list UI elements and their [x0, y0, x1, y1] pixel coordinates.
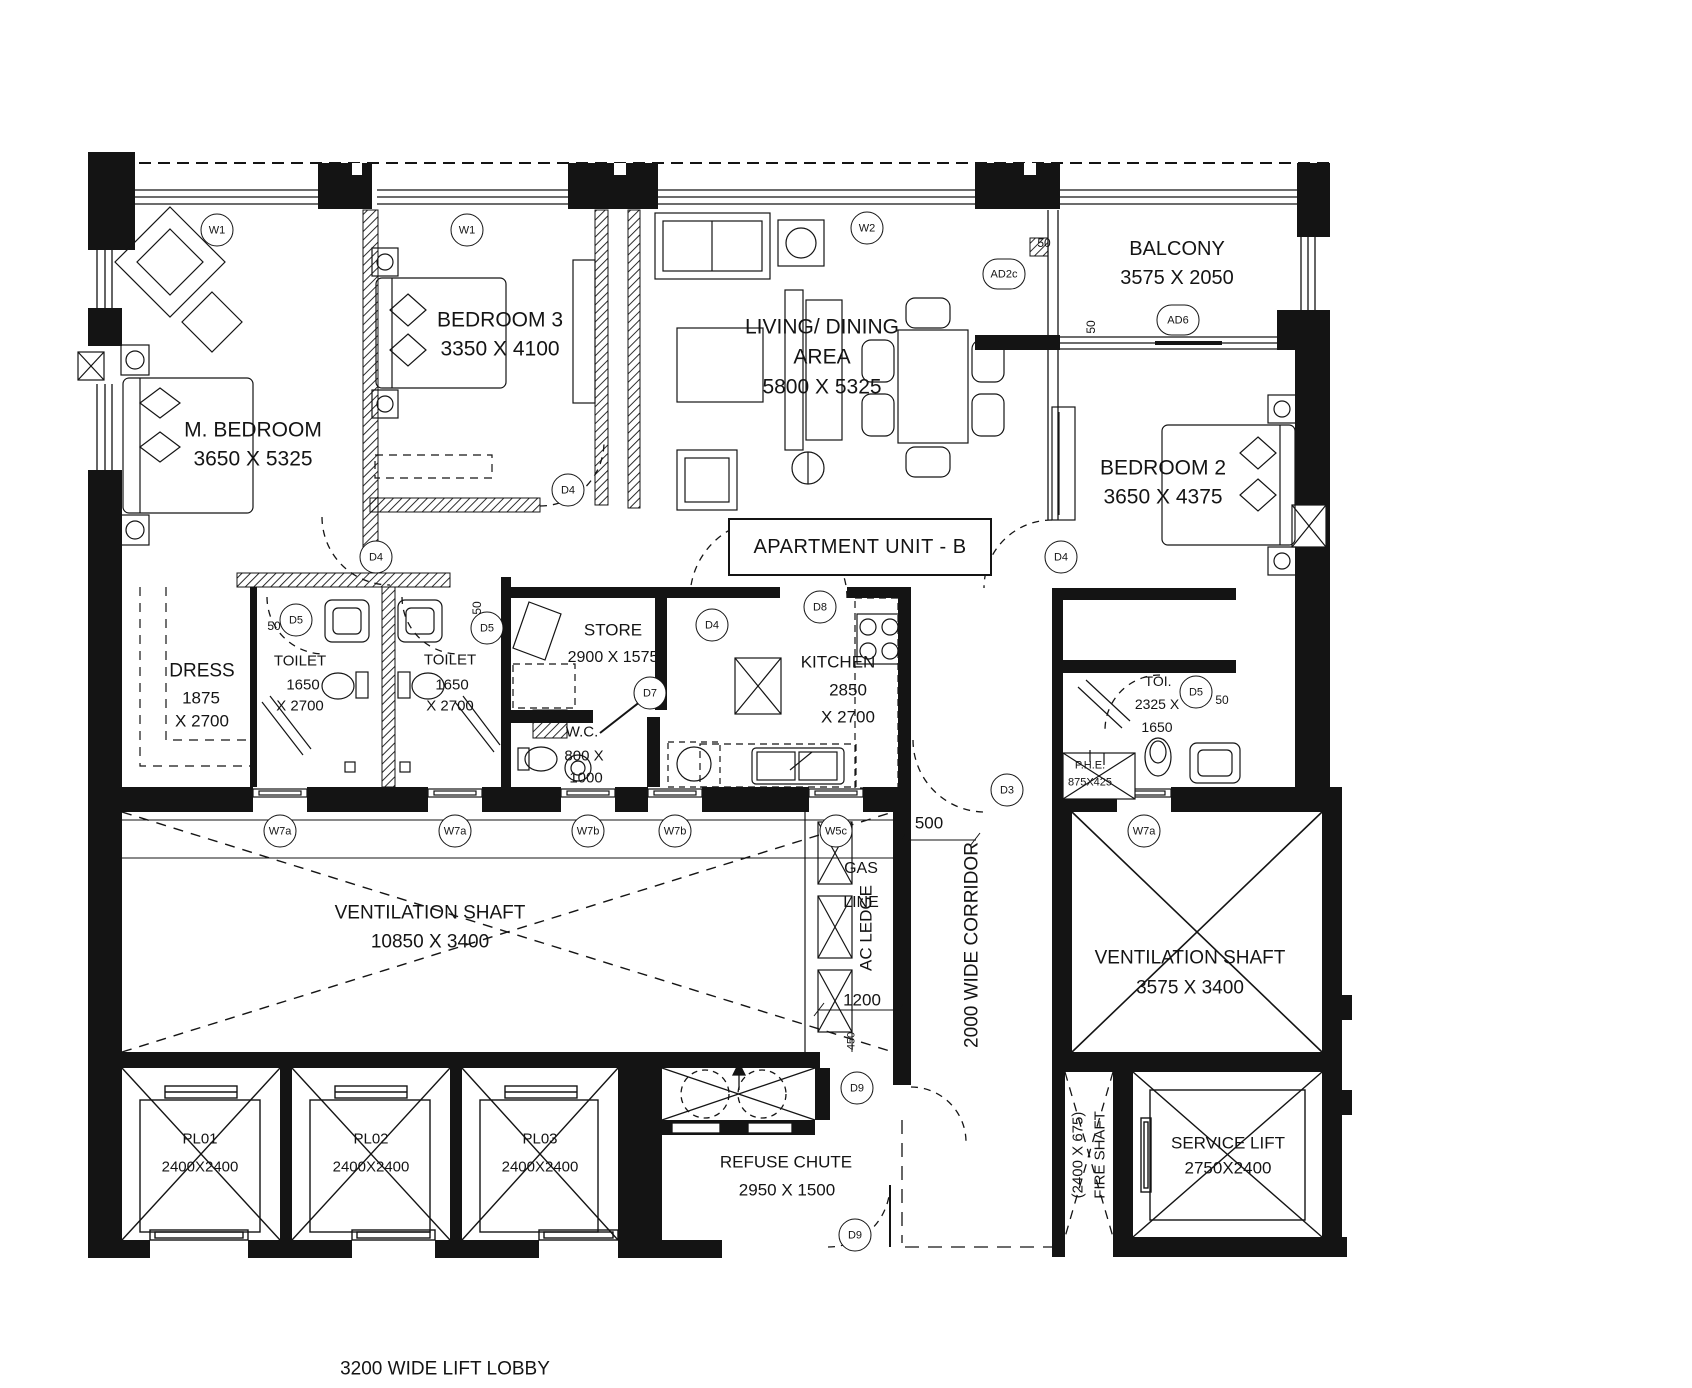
floor-plan-canvas: APARTMENT UNIT - B M. BEDROOM 3650 X 532…: [0, 0, 1692, 1388]
service-lift-cab: [1133, 1072, 1322, 1237]
tag-door-d4-mbed: D4: [360, 541, 393, 574]
dim-50-balcony-bottom: 50: [1085, 320, 1097, 333]
label-refuse: REFUSE CHUTE: [720, 1154, 852, 1171]
label-toilet2-d2: X 2700: [426, 699, 474, 714]
label-bedroom3-dims: 3350 X 4100: [440, 339, 559, 360]
label-fire-shaft: FIRE SHAFT: [1093, 1111, 1108, 1199]
dim-1200: 1200: [843, 992, 881, 1009]
tag-window-w7b-1: W7b: [572, 815, 605, 848]
label-vent-right: VENTILATION SHAFT: [1095, 949, 1286, 968]
label-m-bedroom: M. BEDROOM: [184, 420, 322, 441]
passenger-lifts: [122, 1068, 618, 1240]
tag-window-w7a-3: W7a: [1128, 815, 1161, 848]
dim-50-toi: 50: [1215, 694, 1228, 706]
label-pl01-dims: 2400X2400: [162, 1160, 239, 1175]
label-bedroom2-dims: 3650 X 4375: [1103, 487, 1222, 508]
label-wc-d2: 1000: [569, 771, 602, 786]
tag-window-w7a-1: W7a: [264, 815, 297, 848]
label-kitchen-d1: 2850: [829, 682, 867, 699]
label-kitchen-d2: X 2700: [821, 709, 875, 726]
label-toi-d1: 2325 X: [1135, 697, 1179, 711]
label-store: STORE: [584, 622, 642, 639]
label-pl02: PL02: [353, 1132, 388, 1147]
tag-door-d9-top: D9: [841, 1072, 874, 1105]
label-bedroom3: BEDROOM 3: [437, 310, 563, 331]
label-pl02-dims: 2400X2400: [333, 1160, 410, 1175]
label-toilet1-d1: 1650: [286, 678, 319, 693]
label-living-area: AREA: [793, 347, 850, 368]
label-service-lift: SERVICE LIFT: [1171, 1135, 1285, 1152]
label-bedroom2: BEDROOM 2: [1100, 458, 1226, 479]
label-corridor: 2000 WIDE CORRIDOR: [963, 842, 982, 1048]
label-gas-2: LINE: [843, 895, 879, 911]
label-m-bedroom-dims: 3650 X 5325: [193, 449, 312, 470]
label-pl03: PL03: [522, 1132, 557, 1147]
corridor-boundaries: [902, 1120, 1052, 1247]
dim-500: 500: [915, 815, 943, 832]
label-toilet1: TOILET: [274, 654, 326, 669]
label-wc-d1: 800 X: [564, 749, 603, 764]
label-dress: DRESS: [169, 662, 234, 681]
tag-door-d9-bottom: D9: [839, 1219, 872, 1252]
ac-ledge-strip: [805, 812, 852, 1052]
label-service-lift-dims: 2750X2400: [1185, 1160, 1272, 1177]
label-dress-d2: X 2700: [175, 713, 229, 730]
dim-450: 450: [847, 1032, 858, 1050]
label-refuse-dims: 2950 X 1500: [739, 1182, 835, 1199]
label-phe: P.H.E.: [1075, 761, 1105, 772]
label-toi-d2: 1650: [1141, 720, 1172, 734]
label-vent-left-dims: 10850 X 3400: [371, 933, 489, 952]
label-toilet2: TOILET: [424, 653, 476, 668]
ventilation-shaft-left: [122, 812, 893, 1052]
label-fire-shaft-dims: (2400 X 675): [1071, 1112, 1086, 1199]
label-balcony: BALCONY: [1129, 239, 1225, 259]
tag-door-d3-entry: D3: [991, 774, 1024, 807]
tag-door-ad2c: AD2c: [983, 259, 1026, 290]
label-pl03-dims: 2400X2400: [502, 1160, 579, 1175]
tag-door-d4-bed2: D4: [1045, 541, 1078, 574]
label-toi: TOI.: [1145, 674, 1172, 688]
label-toilet2-d1: 1650: [435, 678, 468, 693]
ventilation-shaft-right: [1072, 812, 1322, 1052]
tag-door-d7-wc: D7: [634, 677, 667, 710]
label-vent-right-dims: 3575 X 3400: [1136, 979, 1244, 998]
label-dress-d1: 1875: [182, 690, 220, 707]
tag-door-d8-kitchen: D8: [804, 591, 837, 624]
label-store-dims: 2900 X 1575: [568, 650, 659, 666]
tag-window-w7b-2: W7b: [659, 815, 692, 848]
tag-door-ad6: AD6: [1157, 305, 1200, 336]
tag-window-w2-living: W2: [851, 212, 884, 245]
label-pl01: PL01: [182, 1132, 217, 1147]
dim-50-balcony-top: 50: [1037, 237, 1050, 249]
tag-window-w1-mbed: W1: [201, 214, 234, 247]
apartment-unit-title: APARTMENT UNIT - B: [728, 518, 992, 576]
label-vent-left: VENTILATION SHAFT: [335, 904, 526, 923]
tag-door-d5-toilet2: D5: [471, 612, 504, 645]
label-living-dims: 5800 X 5325: [762, 377, 881, 398]
label-wc: W.C.: [566, 725, 599, 740]
tag-window-w1-bed3: W1: [451, 214, 484, 247]
label-gas-1: GAS: [844, 861, 878, 877]
tag-window-w7a-2: W7a: [439, 815, 472, 848]
tag-door-d4-bed3: D4: [552, 474, 585, 507]
tag-door-d5-toi: D5: [1180, 676, 1213, 709]
label-toilet1-d2: X 2700: [276, 699, 324, 714]
label-lift-lobby: 3200 WIDE LIFT LOBBY: [340, 1360, 550, 1379]
label-phe-dims: 875X425: [1068, 778, 1112, 789]
tag-door-d5-toilet1: D5: [280, 604, 313, 637]
tag-door-d4-store: D4: [696, 609, 729, 642]
label-balcony-dims: 3575 X 2050: [1120, 268, 1233, 288]
label-kitchen: KITCHEN: [801, 654, 876, 671]
tag-window-w5c: W5c: [820, 815, 853, 848]
label-living: LIVING/ DINING: [745, 317, 899, 338]
